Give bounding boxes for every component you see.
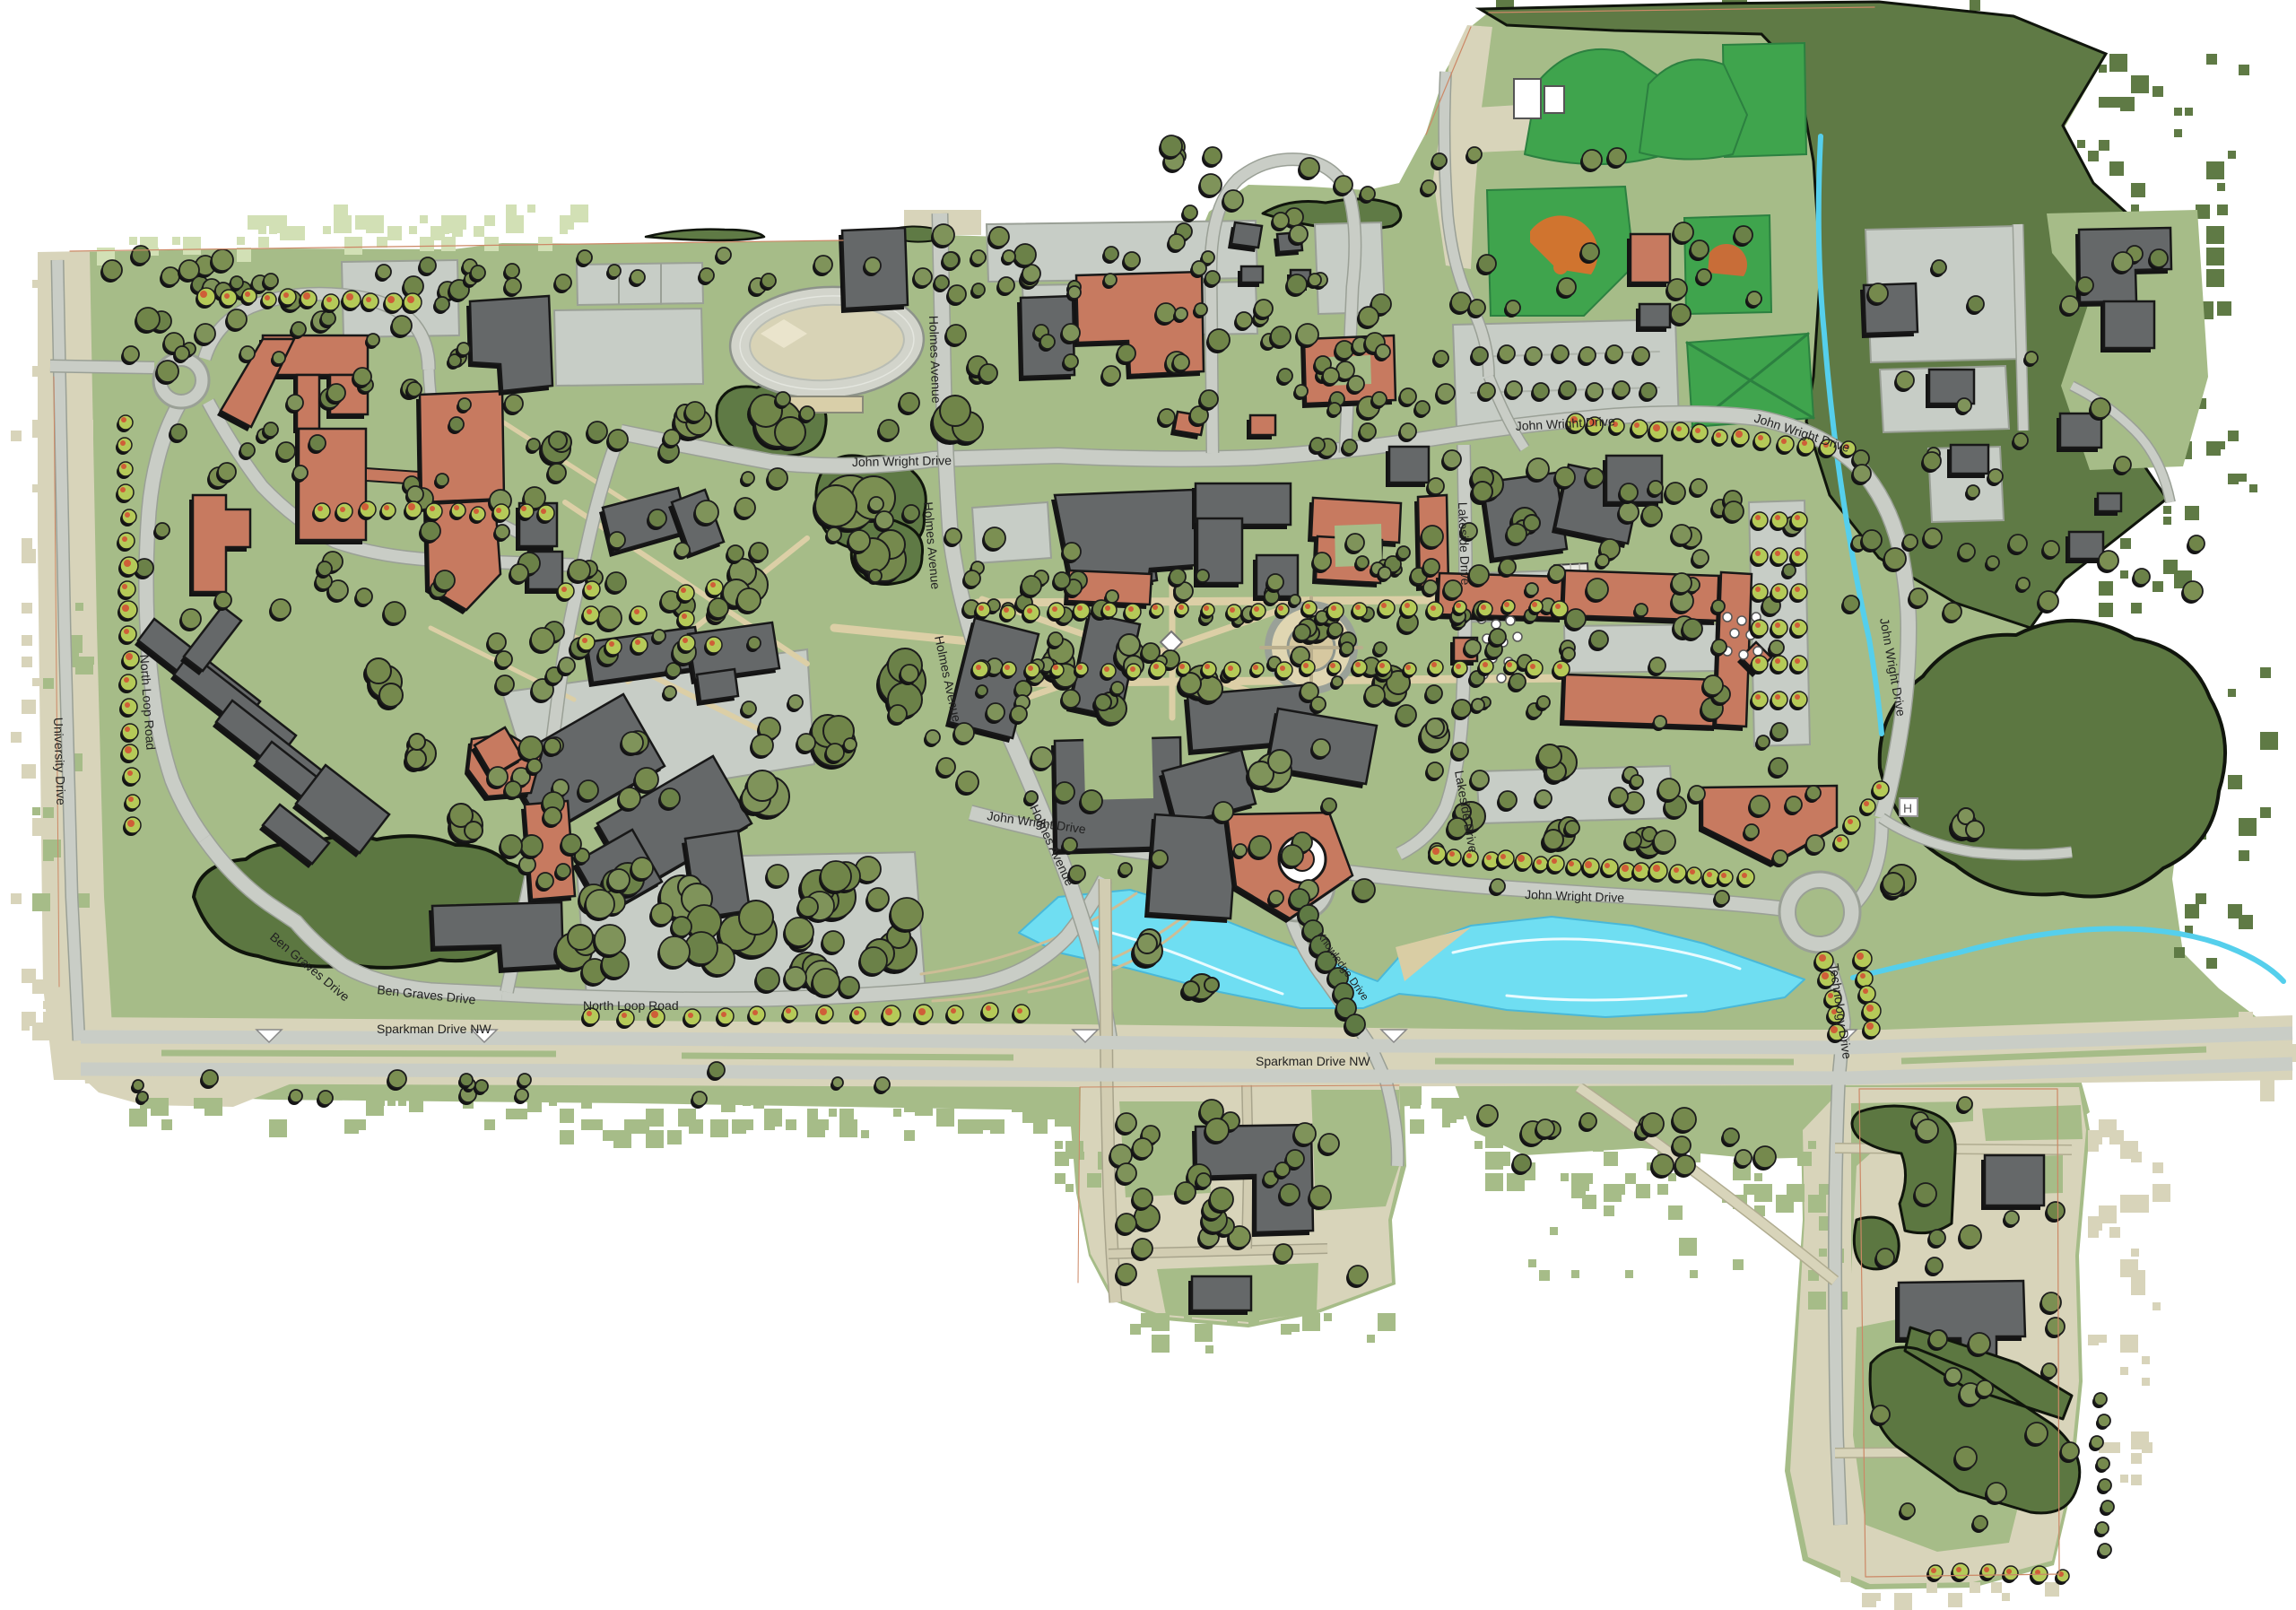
- svg-text:Lakeside Drive: Lakeside Drive: [1456, 502, 1473, 586]
- svg-text:H: H: [1903, 801, 1912, 815]
- svg-text:University Drive: University Drive: [51, 718, 68, 806]
- svg-text:Holmes Avenue: Holmes Avenue: [926, 316, 944, 405]
- svg-text:North Loop Road: North Loop Road: [583, 998, 679, 1013]
- svg-text:Sparkman Drive NW: Sparkman Drive NW: [377, 1022, 491, 1036]
- svg-text:Sparkman Drive NW: Sparkman Drive NW: [1256, 1054, 1370, 1068]
- svg-text:John Wright Drive: John Wright Drive: [852, 453, 952, 469]
